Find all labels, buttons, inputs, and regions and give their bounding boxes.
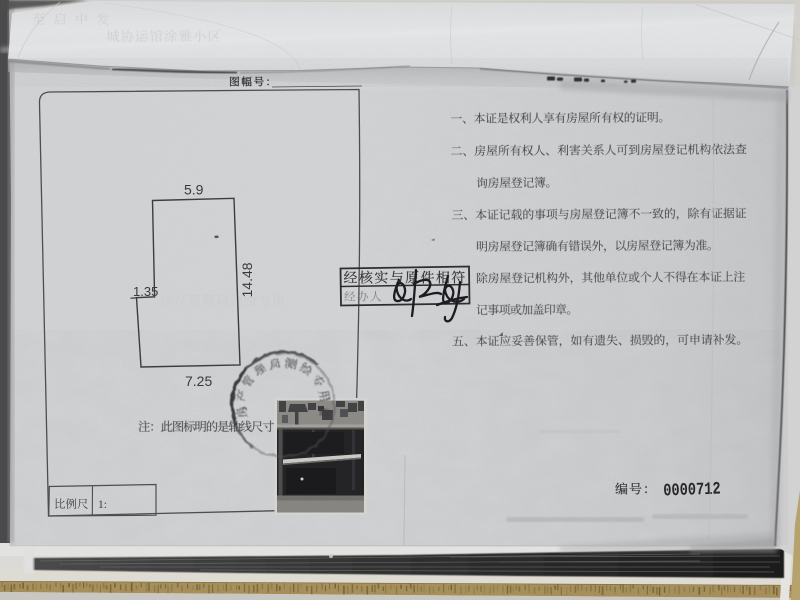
svg-text:14.48: 14.48 [239,262,255,297]
svg-text:1:: 1: [98,499,107,511]
svg-text:1.35: 1.35 [133,284,158,299]
svg-text:0000712: 0000712 [663,479,721,501]
svg-text:7.25: 7.25 [185,373,212,389]
svg-text:5.9: 5.9 [184,182,204,198]
